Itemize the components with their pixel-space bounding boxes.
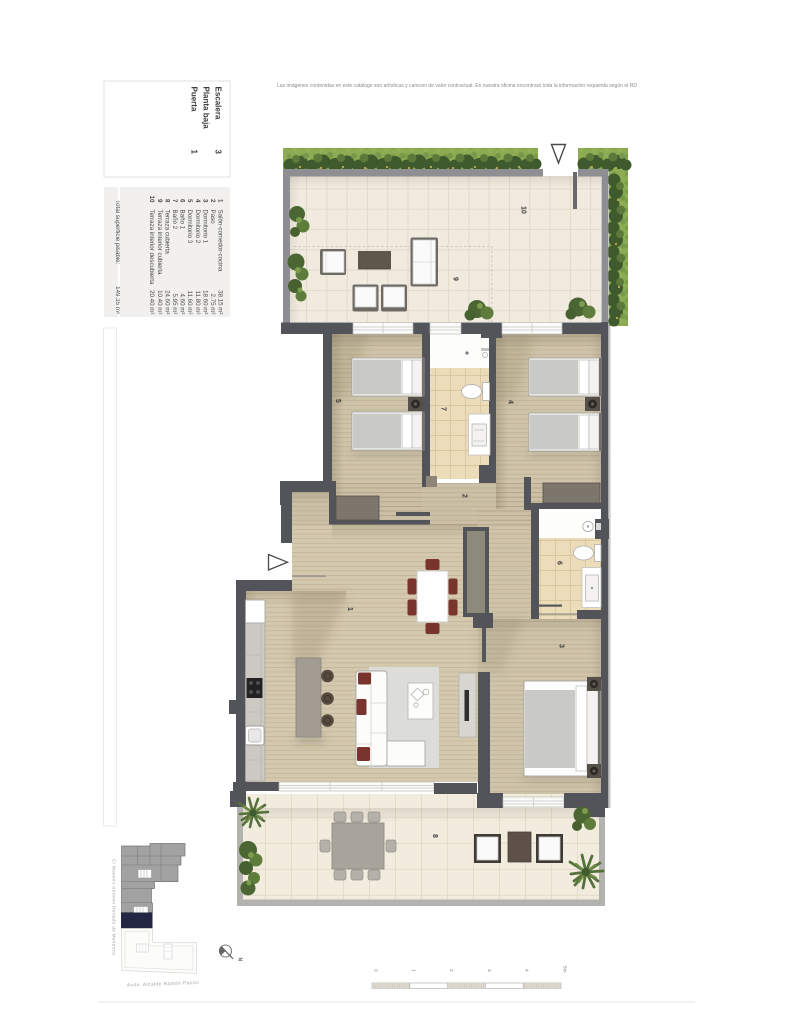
svg-text:9: 9	[452, 277, 459, 281]
svg-text:18.60 m²: 18.60 m²	[201, 290, 208, 314]
svg-text:1: 1	[411, 969, 416, 972]
svg-text:Baño 2: Baño 2	[171, 210, 178, 230]
svg-text:3: 3	[558, 644, 565, 648]
svg-text:3: 3	[487, 969, 492, 972]
svg-text:20.40 m²: 20.40 m²	[148, 290, 155, 314]
svg-text:C/ Maestro Antonio Hurtado de: C/ Maestro Antonio Hurtado de Mendoza	[112, 859, 117, 955]
svg-text:4: 4	[525, 969, 530, 972]
svg-text:6: 6	[179, 199, 186, 203]
svg-text:Dormitorio 3: Dormitorio 3	[186, 210, 193, 244]
svg-text:7: 7	[171, 199, 178, 203]
svg-text:1: 1	[190, 150, 199, 155]
svg-text:Terraza cubierta: Terraza cubierta	[163, 210, 170, 255]
svg-text:Las imágenes contenidas en est: Las imágenes contenidas en este catálogo…	[277, 83, 637, 89]
svg-text:Dormitorio 1: Dormitorio 1	[201, 210, 208, 244]
svg-text:Total superficie pisable:: Total superficie pisable:	[114, 200, 121, 265]
svg-text:8: 8	[163, 199, 170, 203]
svg-text:4: 4	[194, 199, 201, 203]
svg-text:2: 2	[449, 969, 454, 972]
svg-text:0: 0	[374, 969, 379, 972]
svg-text:5.95 m²: 5.95 m²	[171, 294, 178, 315]
svg-text:3: 3	[201, 199, 208, 203]
svg-text:38.15 m²: 38.15 m²	[217, 290, 224, 314]
svg-text:Escalera: Escalera	[214, 87, 223, 120]
svg-text:Planta baja: Planta baja	[202, 87, 211, 130]
svg-text:24.60 m²: 24.60 m²	[163, 290, 170, 314]
svg-text:Terraza interior cubierta: Terraza interior cubierta	[156, 210, 163, 276]
svg-text:5: 5	[186, 199, 193, 203]
svg-text:4: 4	[507, 400, 514, 404]
svg-text:1: 1	[217, 199, 224, 203]
svg-text:5m: 5m	[563, 966, 568, 973]
svg-text:2: 2	[461, 494, 468, 498]
svg-text:Paso: Paso	[209, 210, 216, 225]
svg-text:10.40 m²: 10.40 m²	[156, 290, 163, 314]
svg-text:Baño 1: Baño 1	[179, 210, 186, 230]
svg-text:2: 2	[209, 199, 216, 203]
svg-text:1: 1	[346, 607, 353, 611]
svg-text:7: 7	[440, 407, 447, 411]
svg-text:10: 10	[520, 206, 527, 214]
svg-text:Terraza interior descubierta: Terraza interior descubierta	[148, 210, 155, 286]
svg-text:N: N	[237, 958, 243, 962]
svg-text:Dormitorio 2: Dormitorio 2	[194, 210, 201, 244]
svg-text:2.75 m²: 2.75 m²	[209, 294, 216, 315]
svg-text:8: 8	[431, 834, 438, 838]
svg-text:5: 5	[334, 399, 341, 403]
svg-text:4.60 m²: 4.60 m²	[179, 294, 186, 315]
svg-text:11.60 m²: 11.60 m²	[186, 291, 193, 315]
svg-text:9: 9	[156, 199, 163, 203]
svg-text:Salón-comedor-cocina: Salón-comedor-cocina	[217, 210, 224, 272]
svg-text:149.35 m²: 149.35 m²	[114, 286, 121, 314]
svg-text:Puerta: Puerta	[190, 87, 199, 112]
svg-text:11.80 m²: 11.80 m²	[194, 291, 201, 315]
svg-text:10: 10	[148, 196, 155, 203]
svg-text:6: 6	[556, 561, 563, 565]
svg-text:3: 3	[214, 150, 223, 155]
